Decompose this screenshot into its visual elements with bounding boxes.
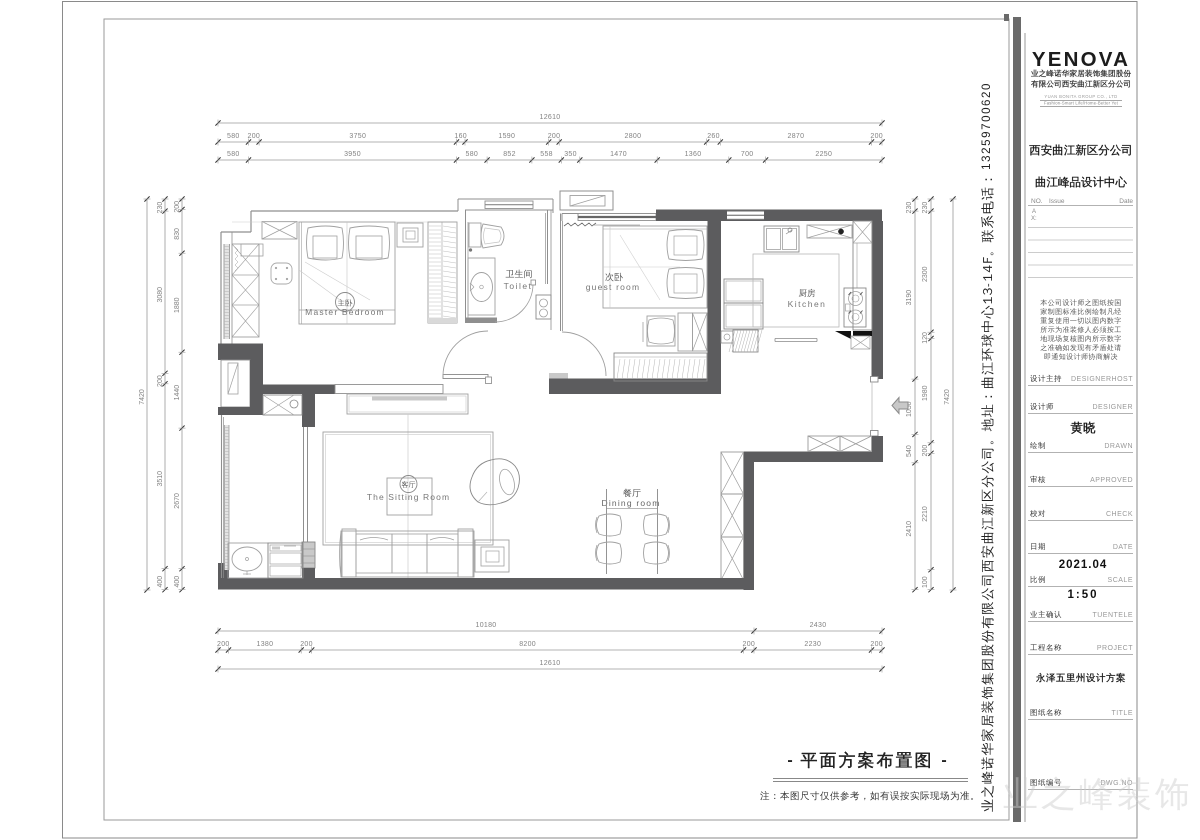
svg-text:1:50: 1:50 xyxy=(1067,589,1098,601)
svg-text:120: 120 xyxy=(922,332,929,344)
svg-text:-: - xyxy=(941,752,946,769)
svg-text:10180: 10180 xyxy=(476,622,497,629)
svg-text:YENOVA: YENOVA xyxy=(1032,48,1130,71)
svg-text:400: 400 xyxy=(174,576,181,588)
svg-text:TUENTELE: TUENTELE xyxy=(1092,612,1133,619)
svg-text:200: 200 xyxy=(870,133,883,140)
svg-text:200: 200 xyxy=(743,641,756,648)
svg-text:160: 160 xyxy=(454,133,467,140)
svg-text:Master Bedroom: Master Bedroom xyxy=(305,307,385,317)
svg-text:200: 200 xyxy=(548,133,561,140)
svg-text:A: A xyxy=(1032,209,1036,215)
svg-text:200: 200 xyxy=(248,133,261,140)
svg-text:12610: 12610 xyxy=(540,660,561,667)
svg-text:SCALE: SCALE xyxy=(1108,577,1133,584)
svg-text:X:: X: xyxy=(1031,216,1037,222)
svg-text:Kitchen: Kitchen xyxy=(788,299,827,309)
svg-text:200: 200 xyxy=(174,201,181,213)
svg-text:200: 200 xyxy=(870,641,883,648)
svg-text:-: - xyxy=(787,752,792,769)
svg-text:540: 540 xyxy=(906,445,913,457)
svg-text:13259700620: 13259700620 xyxy=(981,82,993,170)
svg-text:7420: 7420 xyxy=(139,389,146,405)
svg-text:7420: 7420 xyxy=(944,389,951,405)
svg-text:NO.: NO. xyxy=(1031,198,1043,205)
svg-text:260: 260 xyxy=(707,133,720,140)
svg-text:8200: 8200 xyxy=(519,641,536,648)
svg-text:1980: 1980 xyxy=(922,385,929,401)
svg-text:830: 830 xyxy=(174,228,181,240)
svg-text:1360: 1360 xyxy=(685,151,702,158)
svg-text:DESIGNER: DESIGNER xyxy=(1092,404,1133,411)
svg-text:3190: 3190 xyxy=(906,290,913,306)
svg-text:3750: 3750 xyxy=(349,133,366,140)
svg-text:700: 700 xyxy=(741,151,754,158)
svg-text:230: 230 xyxy=(906,202,913,214)
svg-text:2250: 2250 xyxy=(815,151,832,158)
svg-text:580: 580 xyxy=(227,151,240,158)
svg-text:Toilet: Toilet xyxy=(504,281,533,291)
svg-text:1380: 1380 xyxy=(257,641,274,648)
svg-text:2870: 2870 xyxy=(788,133,805,140)
svg-text:1440: 1440 xyxy=(174,385,181,401)
svg-text:guest room: guest room xyxy=(586,282,641,292)
svg-text:200: 200 xyxy=(157,375,164,387)
svg-text:PROJECT: PROJECT xyxy=(1097,645,1133,652)
svg-text:2410: 2410 xyxy=(906,521,913,537)
svg-text:3950: 3950 xyxy=(344,151,361,158)
svg-text:The Sitting Room: The Sitting Room xyxy=(367,492,450,502)
svg-text:1590: 1590 xyxy=(498,133,515,140)
svg-text:852: 852 xyxy=(503,151,516,158)
svg-text:3080: 3080 xyxy=(157,287,164,303)
svg-text:200: 200 xyxy=(300,641,313,648)
svg-text:2210: 2210 xyxy=(922,506,929,522)
svg-text:200: 200 xyxy=(922,445,929,457)
svg-text:2021.04: 2021.04 xyxy=(1059,559,1108,571)
svg-text:350: 350 xyxy=(564,151,577,158)
svg-text:APPROVED: APPROVED xyxy=(1090,477,1133,484)
svg-text:DESIGNERHOST: DESIGNERHOST xyxy=(1071,376,1133,383)
svg-text:580: 580 xyxy=(466,151,479,158)
svg-text:YUAN BONITA GROUP CO., LTD: YUAN BONITA GROUP CO., LTD xyxy=(1044,94,1117,99)
svg-text:558: 558 xyxy=(540,151,553,158)
svg-text:200: 200 xyxy=(217,641,230,648)
svg-text:3510: 3510 xyxy=(157,471,164,487)
svg-text:2430: 2430 xyxy=(810,622,827,629)
svg-text:DRAWN: DRAWN xyxy=(1104,443,1133,450)
svg-text:CHECK: CHECK xyxy=(1106,511,1133,518)
svg-text:230: 230 xyxy=(922,202,929,214)
svg-text:TITLE: TITLE xyxy=(1111,710,1133,717)
svg-text:2230: 2230 xyxy=(804,641,821,648)
svg-text:DATE: DATE xyxy=(1113,544,1133,551)
svg-text:2670: 2670 xyxy=(174,493,181,509)
svg-text:580: 580 xyxy=(227,133,240,140)
svg-text:100: 100 xyxy=(922,576,929,588)
svg-text:1880: 1880 xyxy=(174,297,181,313)
svg-text:Dining room: Dining room xyxy=(601,498,660,508)
svg-text:2800: 2800 xyxy=(625,133,642,140)
svg-text:Fashion-Smart Life/Home-Better: Fashion-Smart Life/Home-Better Yet xyxy=(1044,101,1119,106)
svg-text:Issue: Issue xyxy=(1049,198,1065,205)
svg-text:230: 230 xyxy=(157,202,164,214)
svg-text:2300: 2300 xyxy=(922,266,929,282)
svg-text:1470: 1470 xyxy=(610,151,627,158)
svg-text:400: 400 xyxy=(157,576,164,588)
svg-text:12610: 12610 xyxy=(540,114,561,121)
svg-text:Date: Date xyxy=(1119,198,1133,205)
